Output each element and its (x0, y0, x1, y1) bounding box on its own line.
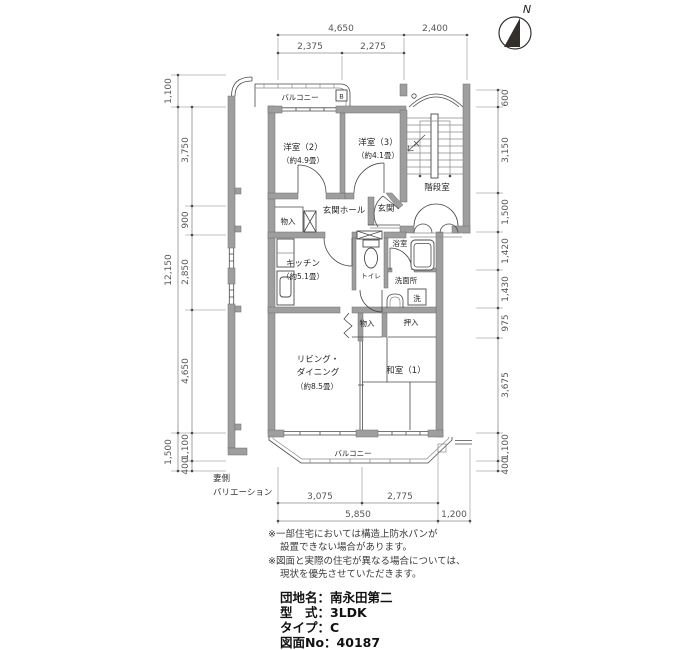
western2-size: （約4.9畳） (282, 155, 324, 165)
floor-plan-page: N B バルコニー (0, 0, 700, 650)
note-line-2: 設置できない場合があります。 (280, 541, 412, 553)
dim-right-1420: 1,420 (501, 238, 511, 264)
dim-bottom-3075: 3,075 (307, 492, 333, 502)
stair-stringer (431, 114, 438, 178)
dim-right-3675: 3,675 (501, 372, 511, 398)
dim-right-1100: 1,100 (501, 434, 511, 460)
western3-size: （約4.1畳） (357, 150, 399, 160)
dim-top-2400: 2,400 (422, 24, 448, 34)
entrance-label: 玄関 (377, 203, 394, 214)
dim-left-400: 400 (181, 457, 191, 474)
washer-label: 洗 (413, 293, 421, 303)
info-block: 団地名：南永田第二 型 式：3LDK タイプ：C 図面No：40187 (280, 590, 393, 650)
compass-north-label: N (523, 3, 531, 16)
door-folding-storage (344, 313, 352, 338)
toilet-label: トイレ (361, 272, 381, 280)
door-kitchen (324, 238, 352, 266)
living-label-2: ダイニング (297, 367, 340, 378)
dimensions-bottom: 3,075 2,775 5,850 1,200 (277, 448, 472, 524)
info-estate-name: 団地名：南永田第二 (280, 590, 393, 605)
gable-annotation: 妻側 バリエーション (213, 473, 272, 498)
balcony-bottom: バルコニー (269, 437, 472, 463)
compass: N (499, 3, 531, 49)
kitchen-label: キッチン (286, 259, 320, 269)
note-line-3: ※図面と実際の住宅が異なる場合については、 (268, 555, 466, 567)
door-western2 (298, 165, 326, 193)
gable-annotation-line1: 妻側 (213, 473, 230, 484)
storage-top-label: 物入 (281, 216, 296, 226)
toilet-tank (363, 240, 379, 247)
dim-bottom-5850: 5,850 (345, 510, 371, 520)
entrance-hall-label: 玄関ホール (323, 205, 366, 216)
north-needle-icon (504, 18, 520, 47)
japanese-room-label: 和室（1） (386, 365, 425, 376)
storage-mid-label: 物入 (360, 318, 375, 328)
balcony-top: B バルコニー (255, 84, 350, 107)
western2-label: 洋室（2） (283, 142, 322, 153)
dim-left-1100-top: 1,100 (164, 78, 174, 104)
tatami-lines (363, 337, 436, 430)
gable-variation-wall (228, 77, 252, 455)
dimensions-top: 4,650 2,400 2,375 2,275 (277, 24, 469, 80)
bath-label: 浴室 (393, 238, 408, 248)
kitchen-size: （約5.1畳） (282, 271, 324, 281)
notes-block: ※一部住宅においては構造上防水パンが 設置できない場合があります。 ※図面と実際… (268, 528, 466, 580)
door-bath (390, 248, 412, 270)
info-layout-type: 型 式：3LDK (280, 605, 368, 620)
dimensions-right: 600 3,150 1,500 1,420 1,430 975 3,675 1,… (476, 89, 511, 475)
balcony-marker-label: B (339, 93, 343, 101)
dim-left-2850: 2,850 (181, 259, 191, 285)
dim-right-1500: 1,500 (501, 199, 511, 225)
dim-left-3750: 3,750 (181, 137, 191, 163)
dim-left-4650: 4,650 (181, 358, 191, 384)
dim-top-4650: 4,650 (328, 24, 354, 34)
dim-top-2275: 2,275 (360, 42, 386, 52)
closet-label: 押入 (404, 317, 419, 327)
dim-left-12150: 12,150 (164, 254, 174, 286)
dim-right-600: 600 (501, 89, 511, 106)
balcony-bottom-label: バルコニー (334, 449, 371, 458)
gable-annotation-line2: バリエーション (213, 488, 272, 498)
dim-bottom-2775: 2,775 (387, 492, 413, 502)
door-western3 (354, 163, 384, 193)
washroom-label: 洗面所 (395, 275, 418, 285)
dim-right-3150: 3,150 (501, 137, 511, 163)
dim-right-975: 975 (501, 314, 511, 331)
dim-bottom-1200: 1,200 (441, 510, 467, 520)
balcony-top-label: バルコニー (281, 93, 318, 102)
dim-left-1500: 1,500 (164, 439, 174, 465)
info-type: タイプ：C (280, 620, 339, 635)
note-line-4: 現状を優先させていただきます。 (280, 568, 422, 580)
stairwell: 階段室 (407, 94, 463, 237)
western3-label: 洋室（3） (358, 137, 397, 148)
living-size: （約8.5畳） (296, 381, 338, 391)
info-drawing-number: 図面No：40187 (280, 635, 380, 650)
living-label-1: リビング・ (297, 354, 340, 365)
tatami-partitions (352, 337, 436, 430)
stairwell-label: 階段室 (424, 182, 450, 193)
dim-left-900: 900 (181, 211, 191, 228)
dimensions-left: 1,100 12,150 1,500 3,750 900 2,850 4,650… (164, 74, 226, 475)
note-line-1: ※一部住宅においては構造上防水パンが (268, 528, 438, 540)
dim-right-400: 400 (501, 457, 511, 474)
dim-right-1430: 1,430 (501, 276, 511, 302)
dim-left-1100-bot: 1,100 (181, 434, 191, 460)
dim-top-2375: 2,375 (297, 42, 323, 52)
toilet-bowl-icon (365, 248, 378, 268)
sink-icon (387, 294, 403, 308)
